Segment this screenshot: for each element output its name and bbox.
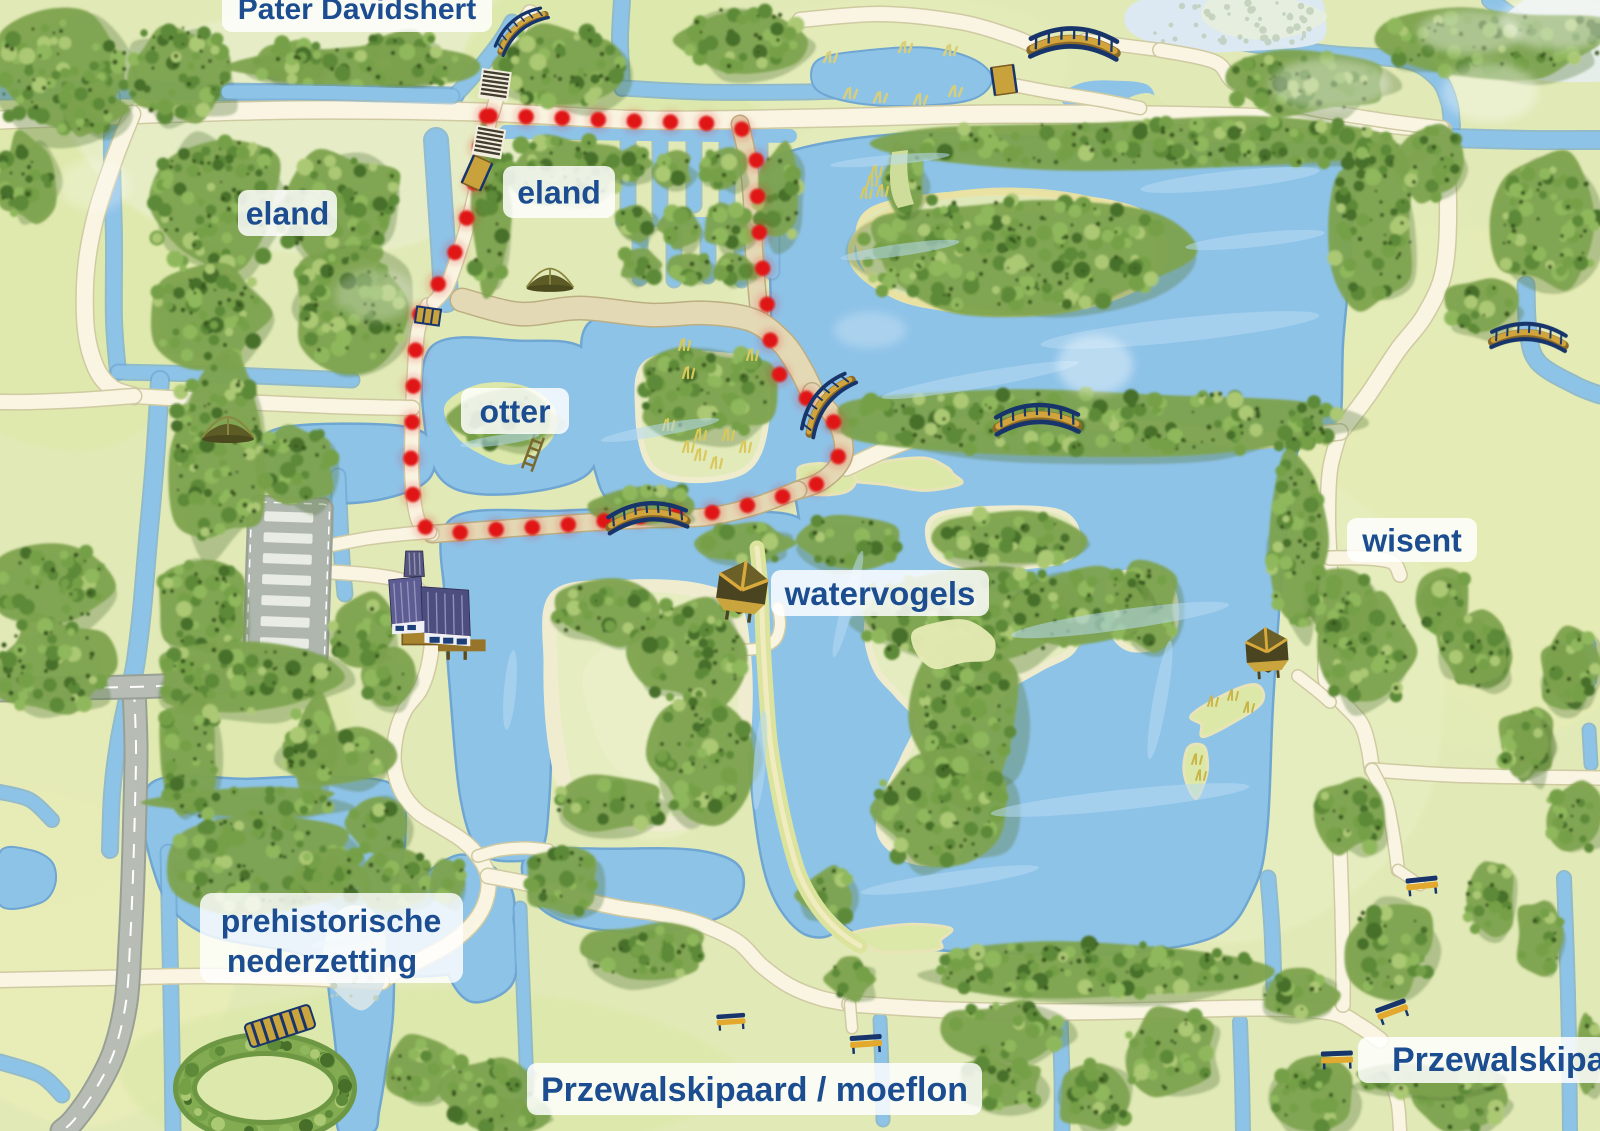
svg-text:watervogels: watervogels [784, 575, 976, 612]
svg-text:nederzetting: nederzetting [227, 943, 417, 979]
svg-text:otter: otter [479, 394, 550, 430]
svg-text:eland: eland [246, 196, 330, 232]
svg-text:Przewalskipaard / moeflon: Przewalskipaard / moeflon [541, 1071, 968, 1109]
svg-text:eland: eland [517, 175, 601, 211]
svg-text:Pater Davidshert: Pater Davidshert [238, 0, 476, 26]
svg-text:prehistorische: prehistorische [221, 903, 442, 939]
svg-text:wisent: wisent [1361, 523, 1462, 559]
svg-text:Przewalskipa: Przewalskipa [1392, 1041, 1600, 1079]
